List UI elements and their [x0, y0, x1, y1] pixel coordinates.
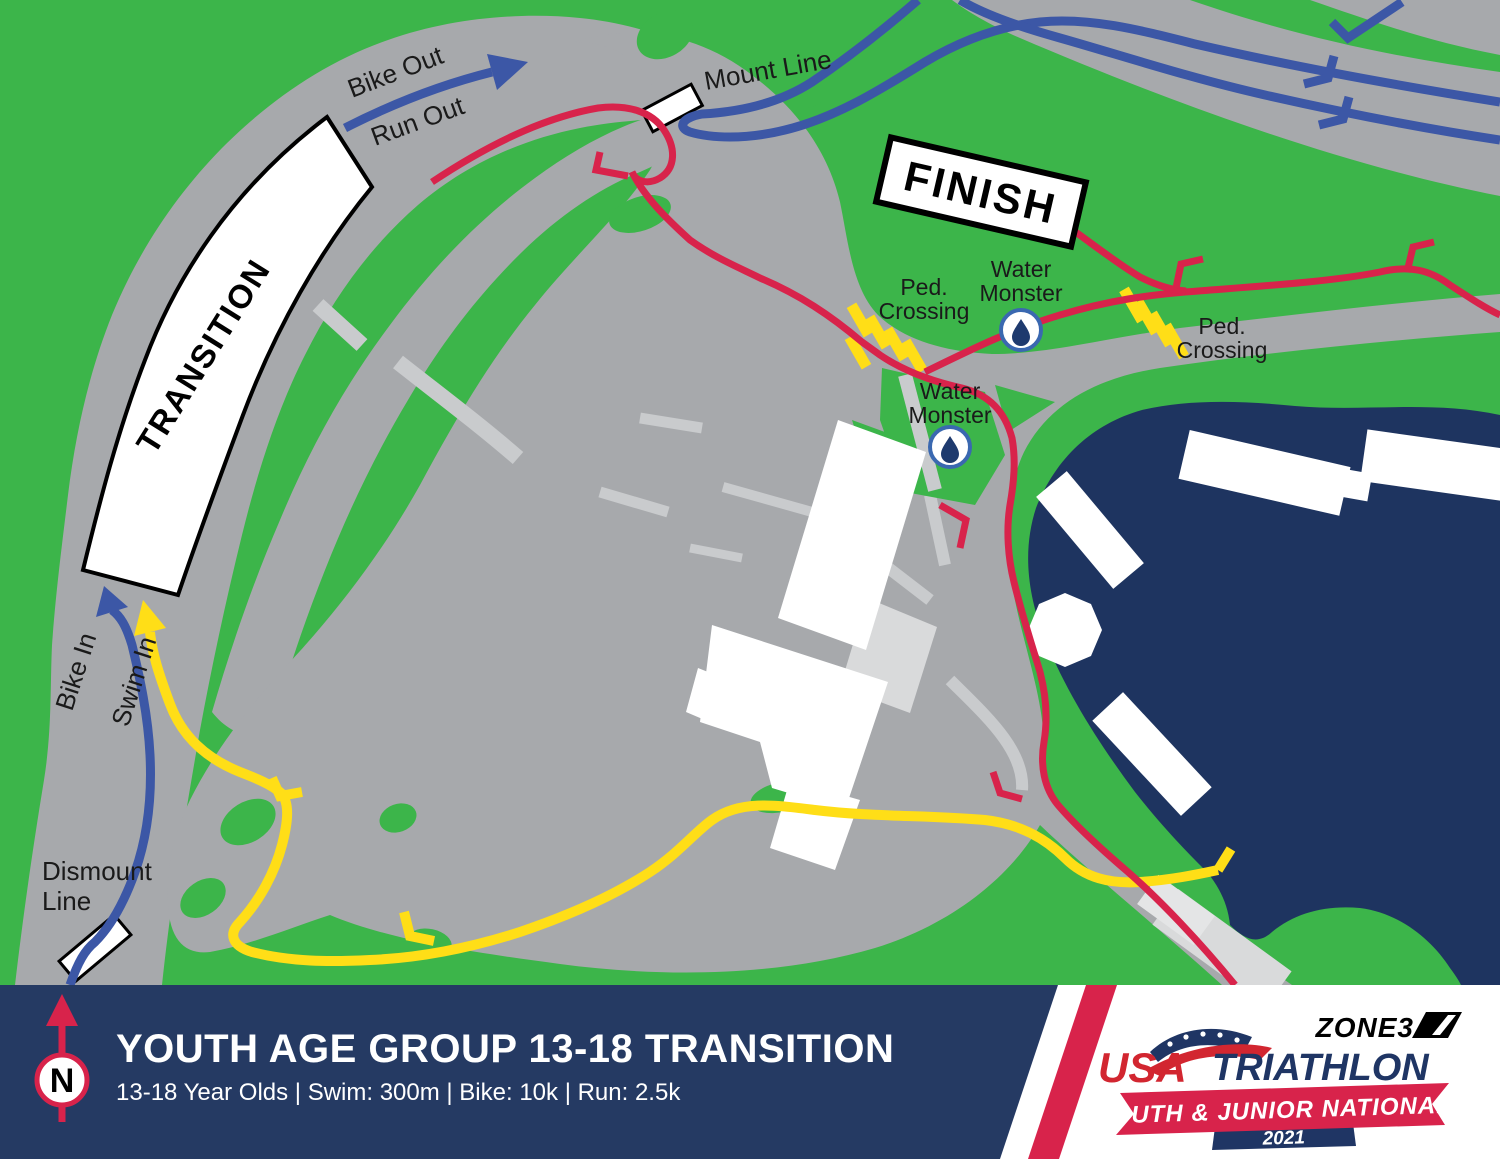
footer-title: YOUTH AGE GROUP 13-18 TRANSITION [116, 1027, 894, 1071]
zone3-logo-text: ZONE3 [1315, 1012, 1414, 1043]
star [1234, 1037, 1239, 1042]
ped-crossing-line2: Crossing [879, 298, 970, 324]
water-monster-line2: Monster [979, 280, 1062, 306]
north-arrow-label: N [50, 1062, 75, 1100]
water-monster-line1: Water [920, 378, 981, 404]
dock-octagon [1028, 593, 1102, 667]
year-banner-text: 2021 [1261, 1127, 1305, 1149]
course-map-svg: TRANSITION [0, 0, 1500, 1159]
dismount-line2: Line [42, 886, 91, 916]
ped-crossing-line1: Ped. [1198, 313, 1245, 339]
footer: N YOUTH AGE GROUP 13-18 TRANSITION 13-18… [0, 985, 1500, 1159]
dock [1338, 469, 1372, 502]
usat-usa-text: USA [1098, 1044, 1187, 1091]
water-monster-line1: Water [991, 256, 1052, 282]
usat-triathlon-text: TRIATHLON [1212, 1047, 1430, 1089]
ped-crossing-line2: Crossing [1177, 337, 1268, 363]
water-monster-icon [1001, 310, 1041, 350]
water-monster-label-south: Water Monster [908, 378, 991, 428]
course-map-page: TRANSITION [0, 0, 1500, 1159]
footer-subtitle: 13-18 Year Olds | Swim: 300m | Bike: 10k… [116, 1079, 681, 1106]
water-monster-label-north: Water Monster [979, 256, 1062, 306]
water-monster-icon [930, 427, 970, 467]
water-monster-line2: Monster [908, 402, 991, 428]
star [1200, 1031, 1205, 1036]
star [1217, 1032, 1222, 1037]
ped-crossing-line1: Ped. [900, 274, 947, 300]
star [1183, 1034, 1188, 1039]
dismount-line1: Dismount [42, 856, 153, 886]
